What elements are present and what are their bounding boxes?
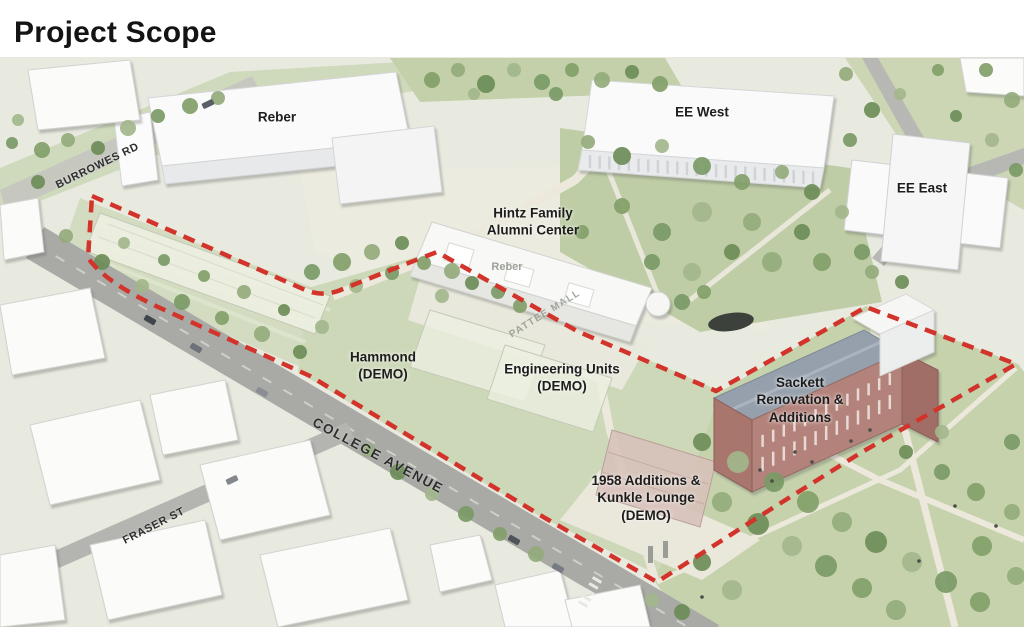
label-hintz: Hintz Family Alumni Center (487, 205, 579, 240)
label-1958-additions: 1958 Additions & Kunkle Lounge (DEMO) (591, 472, 700, 524)
campus-map-illustration (0, 0, 1024, 627)
label-ee-west: EE West (675, 103, 729, 120)
label-sackett: Sackett Renovation & Additions (756, 374, 843, 426)
label-hammond: Hammond (DEMO) (350, 349, 416, 384)
slide: Project Scope Reber EE West EE East Hint… (0, 0, 1024, 627)
ghost-label-reber: Reber (491, 261, 522, 273)
label-engineering-units: Engineering Units (DEMO) (504, 361, 620, 396)
label-ee-east: EE East (897, 179, 947, 196)
page-title: Project Scope (14, 16, 217, 50)
label-reber: Reber (258, 108, 296, 125)
